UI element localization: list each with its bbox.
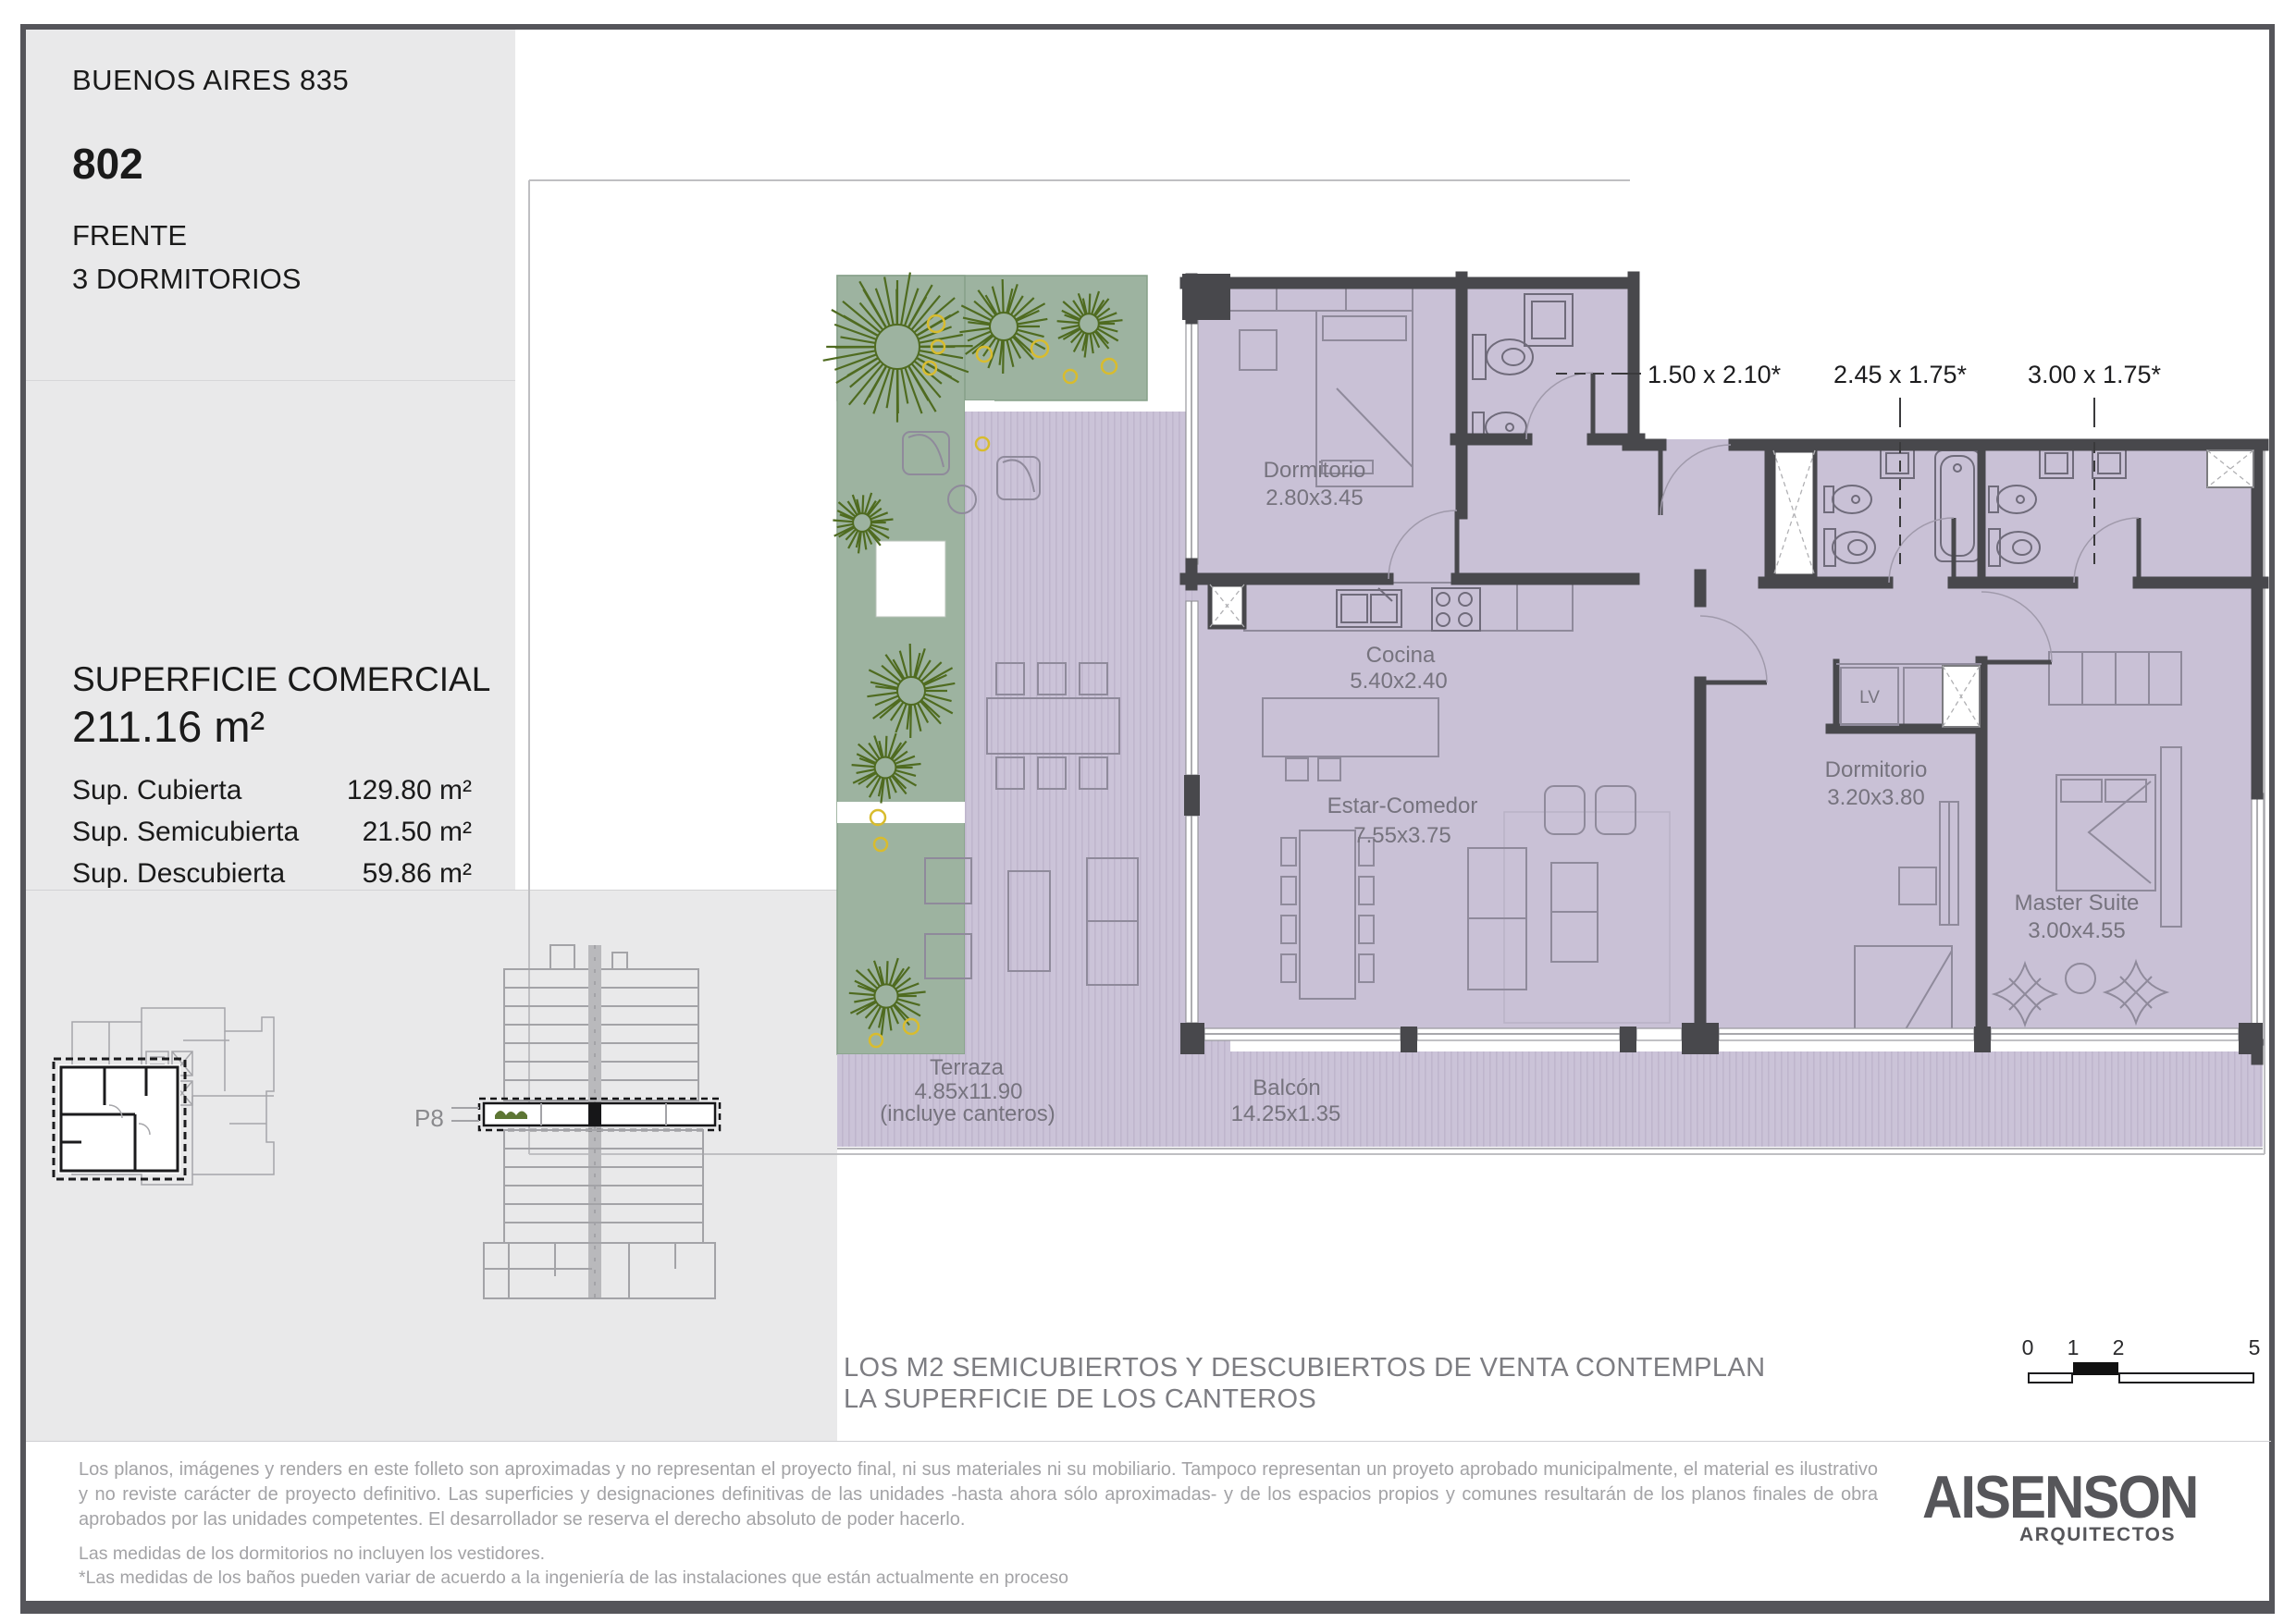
architect-logo: AISENSON ARQUITECTOS (1922, 1469, 2176, 1546)
scale-tick: 1 (2068, 1335, 2080, 1360)
scale-segment (2118, 1372, 2254, 1383)
scale-tick: 0 (2022, 1335, 2034, 1360)
label-master: Master Suite (2015, 891, 2140, 916)
dim-label-bath1: 1.50 x 2.10* (1648, 361, 1782, 388)
sales-note-line1: LOS M2 SEMICUBIERTOS Y DESCUBIERTOS DE V… (844, 1352, 1765, 1383)
label-terraza: Terraza (930, 1055, 1005, 1080)
scale-segment (2028, 1372, 2073, 1383)
label-dormitorio1: Dormitorio (1264, 458, 1366, 483)
label-dormitorio1-size: 2.80x3.45 (1265, 486, 1363, 510)
sales-note: LOS M2 SEMICUBIERTOS Y DESCUBIERTOS DE V… (844, 1352, 1765, 1415)
scale-segment-filled (2073, 1362, 2118, 1375)
label-cocina: Cocina (1366, 643, 1436, 668)
balcon-floor (1230, 1051, 2263, 1147)
scale-tick: 5 (2249, 1335, 2261, 1360)
disclaimer-paragraph: Los planos, imágenes y renders en este f… (79, 1457, 1878, 1532)
label-lv: LV (1859, 688, 1880, 707)
label-terraza-note: (incluye canteros) (880, 1101, 1055, 1126)
dim-label-bath2: 2.45 x 1.75* (1833, 361, 1968, 388)
label-estar-size: 7.55x3.75 (1353, 823, 1450, 848)
brochure-page: BUENOS AIRES 835 802 FRENTE 3 DORMITORIO… (0, 0, 2296, 1623)
label-balcon-size: 14.25x1.35 (1231, 1101, 1341, 1126)
logo-text: AISENSON (1922, 1469, 2176, 1527)
label-dormitorio2-size: 3.20x3.80 (1827, 785, 1924, 810)
footer-divider (26, 1441, 2271, 1442)
section-floor-label: P8 (414, 1104, 444, 1132)
scale-bar: 0 1 2 5 (2009, 1335, 2277, 1395)
key-plan (54, 1008, 274, 1185)
sales-note-line2: LA SUPERFICIE DE LOS CANTEROS (844, 1383, 1765, 1415)
label-terraza-size: 4.85x11.90 (915, 1079, 1023, 1104)
planter-strip (837, 276, 965, 1054)
label-cocina-size: 5.40x2.40 (1350, 669, 1447, 694)
label-master-size: 3.00x4.55 (2028, 918, 2125, 943)
legal-disclaimer: Los planos, imágenes y renders en este f… (79, 1457, 1878, 1590)
disclaimer-note1: Las medidas de los dormitorios no incluy… (79, 1542, 1878, 1566)
scale-tick: 2 (2113, 1335, 2125, 1360)
disclaimer-note2: *Las medidas de los baños pueden variar … (79, 1566, 1878, 1590)
dim-label-bath3: 3.00 x 1.75* (2028, 361, 2162, 388)
building-section: P8 (414, 945, 720, 1298)
label-balcon: Balcón (1253, 1076, 1320, 1100)
label-estar: Estar-Comedor (1327, 793, 1478, 818)
label-dormitorio2: Dormitorio (1825, 757, 1928, 782)
